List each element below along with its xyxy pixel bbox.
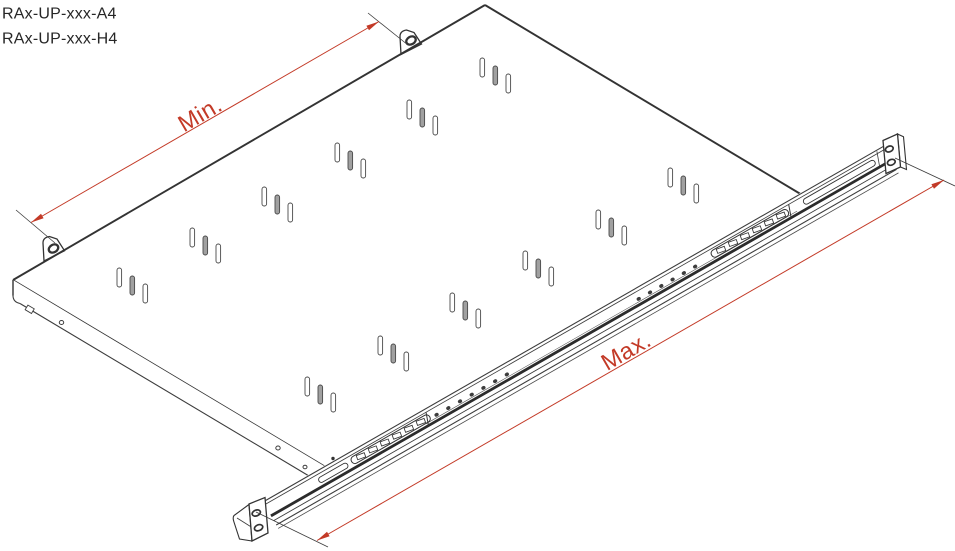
model-number-line1: RAx-UP-xxx-A4 xyxy=(2,6,117,23)
vent-slot xyxy=(596,210,601,229)
vent-slot xyxy=(262,187,267,206)
right-mounting-bracket xyxy=(883,134,907,174)
model-number-line2: RAx-UP-xxx-H4 xyxy=(2,31,118,48)
min-label: Min. xyxy=(173,91,226,137)
vent-slot xyxy=(130,276,135,295)
rail-rivet xyxy=(331,457,334,460)
apron-hole xyxy=(303,465,307,469)
vent-slot xyxy=(404,352,409,371)
vent-slot xyxy=(433,116,438,135)
model-labels: RAx-UP-xxx-A4 RAx-UP-xxx-H4 xyxy=(2,6,118,48)
vent-slot xyxy=(348,151,353,170)
vent-slot xyxy=(622,226,627,245)
vent-slot xyxy=(190,228,195,247)
vent-slot xyxy=(305,377,310,396)
vent-slot xyxy=(493,66,498,85)
vent-slot xyxy=(476,309,481,328)
vent-slot xyxy=(407,100,412,119)
vent-slot xyxy=(450,293,455,312)
vent-slot xyxy=(420,108,425,127)
vent-slot xyxy=(361,159,366,178)
vent-slot xyxy=(216,244,221,263)
vent-slot xyxy=(318,385,323,404)
vent-slot xyxy=(288,203,293,222)
vent-slot xyxy=(549,267,554,286)
shelf-surface xyxy=(13,5,801,467)
ear-hole xyxy=(47,243,59,255)
vent-slot xyxy=(506,74,511,93)
vent-slot xyxy=(523,251,528,270)
vent-slot xyxy=(203,236,208,255)
vent-slot xyxy=(275,195,280,214)
vent-slot xyxy=(391,344,396,363)
apron-hole xyxy=(276,446,280,450)
left-mounting-bracket xyxy=(233,498,268,542)
bracket-face xyxy=(249,498,268,542)
vent-slot xyxy=(117,268,122,287)
vent-slot xyxy=(668,168,673,187)
extension-line xyxy=(16,210,55,243)
vent-slot xyxy=(681,176,686,195)
shelf-top-surface xyxy=(13,5,801,468)
vent-slot xyxy=(331,393,336,412)
extension-line xyxy=(895,158,955,186)
vent-slot xyxy=(480,58,485,77)
dimension-arrow xyxy=(931,180,944,189)
vent-slot xyxy=(143,284,148,303)
apron-hole xyxy=(59,321,63,325)
vent-slot xyxy=(378,336,383,355)
dimension-arrow xyxy=(366,22,379,31)
rack-shelf-technical-drawing: Min. Max. RAx-UP-xxx-A4 RAx-UP-xxx-H4 xyxy=(0,0,955,551)
dimension-arrow xyxy=(31,214,44,223)
bracket-face xyxy=(883,134,901,174)
vent-slot xyxy=(694,184,699,203)
vent-slot xyxy=(463,301,468,320)
dimension-arrow xyxy=(317,532,330,541)
vent-slot xyxy=(335,143,340,162)
extension-line xyxy=(368,13,408,45)
vent-slot xyxy=(536,259,541,278)
technical-drawing-page: Min. Max. RAx-UP-xxx-A4 RAx-UP-xxx-H4 xyxy=(0,0,955,551)
vent-slot xyxy=(609,218,614,237)
